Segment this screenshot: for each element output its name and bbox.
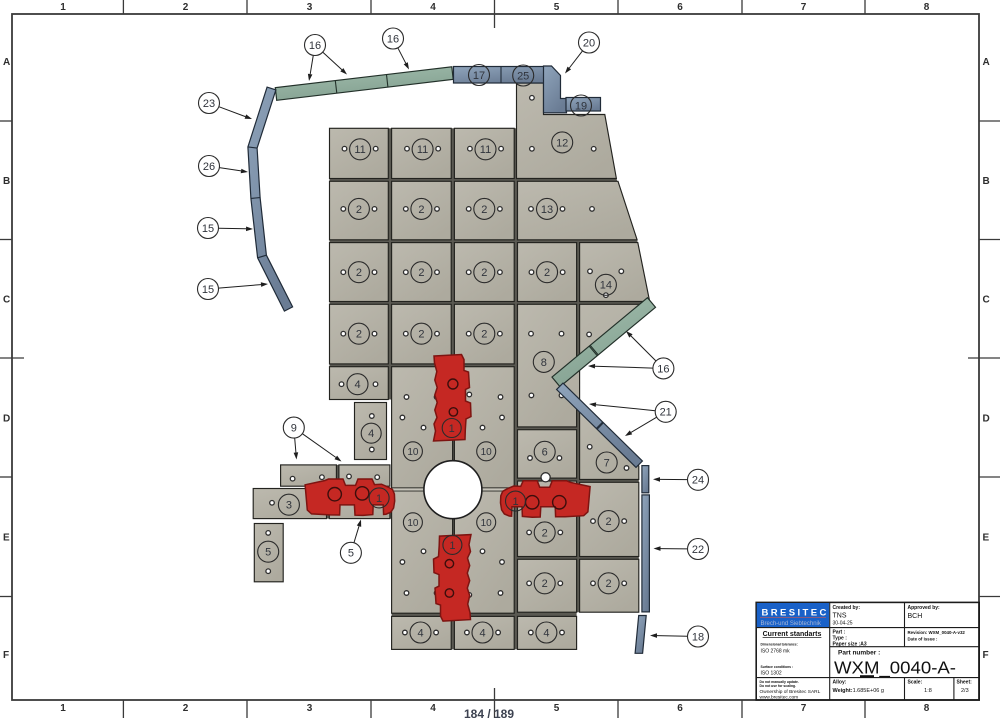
svg-text:4: 4 <box>430 703 436 714</box>
svg-text:Revision: WXM_0040-A-v32: Revision: WXM_0040-A-v32 <box>908 630 966 635</box>
svg-text:2: 2 <box>481 329 487 341</box>
svg-text:20: 20 <box>583 37 595 49</box>
svg-text:22: 22 <box>692 544 704 556</box>
svg-text:16: 16 <box>387 33 399 45</box>
svg-text:10: 10 <box>481 518 493 529</box>
svg-text:15: 15 <box>202 223 214 235</box>
svg-text:2: 2 <box>606 516 612 528</box>
svg-text:BCH: BCH <box>908 613 923 620</box>
svg-text:Alloy:: Alloy: <box>833 679 847 685</box>
svg-text:Ownership of Bresitec SARL: Ownership of Bresitec SARL <box>760 689 821 695</box>
svg-text:2: 2 <box>606 578 612 590</box>
svg-text:A: A <box>3 57 10 68</box>
svg-text:Approved by:: Approved by: <box>908 605 941 611</box>
svg-text:184 / 189: 184 / 189 <box>464 707 514 718</box>
svg-text:4: 4 <box>354 379 360 391</box>
svg-text:Scale:: Scale: <box>908 679 923 685</box>
svg-text:2: 2 <box>542 527 548 539</box>
svg-text:2: 2 <box>544 267 550 279</box>
svg-text:Weight:1.685E+06 g: Weight:1.685E+06 g <box>833 688 884 694</box>
svg-text:4: 4 <box>417 627 423 639</box>
svg-text:2: 2 <box>481 267 487 279</box>
svg-text:6: 6 <box>677 703 683 714</box>
svg-text:25: 25 <box>517 70 529 82</box>
svg-text:7: 7 <box>801 703 807 714</box>
svg-text:2: 2 <box>542 578 548 590</box>
svg-text:4: 4 <box>368 428 374 440</box>
svg-text:10: 10 <box>481 447 493 458</box>
svg-text:2: 2 <box>183 703 189 714</box>
svg-text:9: 9 <box>291 422 297 434</box>
svg-text:E: E <box>983 533 990 544</box>
svg-text:10: 10 <box>407 447 419 458</box>
svg-text:Created by:: Created by: <box>833 605 861 611</box>
svg-text:11: 11 <box>480 144 491 156</box>
svg-text:8: 8 <box>924 703 930 714</box>
svg-text:A: A <box>983 57 990 68</box>
svg-text:D: D <box>3 414 10 425</box>
svg-text:ISO 1302: ISO 1302 <box>761 671 782 677</box>
svg-text:ISO 2768 mk: ISO 2768 mk <box>761 649 791 655</box>
svg-text:21: 21 <box>660 407 672 419</box>
svg-text:Part number :: Part number : <box>838 650 880 657</box>
svg-text:4: 4 <box>543 627 549 639</box>
svg-text:5: 5 <box>265 547 271 559</box>
svg-text:1: 1 <box>60 703 66 714</box>
svg-text:Date of issue :: Date of issue : <box>908 637 939 642</box>
svg-text:Do not use for scaling.: Do not use for scaling. <box>760 684 797 688</box>
svg-text:14: 14 <box>600 280 612 292</box>
svg-text:5: 5 <box>554 2 560 13</box>
svg-text:E: E <box>3 533 10 544</box>
svg-text:24: 24 <box>692 475 704 487</box>
svg-text:16: 16 <box>657 363 669 375</box>
svg-text:2: 2 <box>356 267 362 279</box>
svg-text:Paper size :A3: Paper size :A3 <box>833 642 867 648</box>
svg-text:3: 3 <box>286 500 292 512</box>
svg-text:1: 1 <box>449 540 455 552</box>
svg-text:Current standarts: Current standarts <box>763 631 822 638</box>
svg-text:7: 7 <box>604 457 610 469</box>
svg-text:19: 19 <box>575 100 587 112</box>
svg-text:8: 8 <box>541 357 547 369</box>
svg-text:2: 2 <box>481 204 487 216</box>
svg-text:12: 12 <box>556 137 568 149</box>
svg-text:3: 3 <box>307 703 313 714</box>
svg-text:BRESITEC: BRESITEC <box>762 608 829 619</box>
svg-text:1: 1 <box>449 423 455 435</box>
svg-text:26: 26 <box>203 161 215 173</box>
svg-text:D: D <box>983 414 990 425</box>
svg-text:10: 10 <box>407 518 419 529</box>
svg-text:1:8: 1:8 <box>924 688 932 694</box>
svg-text:1: 1 <box>512 496 518 508</box>
svg-text:7: 7 <box>801 2 807 13</box>
svg-text:2/3: 2/3 <box>961 688 969 694</box>
svg-text:F: F <box>983 650 989 661</box>
svg-text:6: 6 <box>542 447 548 459</box>
svg-text:Dimensional tolerance:: Dimensional tolerance: <box>761 643 798 647</box>
svg-text:15: 15 <box>202 284 214 296</box>
svg-text:Brech-und Siebtechnik: Brech-und Siebtechnik <box>761 621 822 627</box>
svg-text:18: 18 <box>692 631 704 643</box>
svg-text:2: 2 <box>418 204 424 216</box>
svg-text:B: B <box>3 176 10 187</box>
svg-text:4: 4 <box>479 627 485 639</box>
svg-text:16: 16 <box>309 40 321 52</box>
svg-text:F: F <box>3 650 9 661</box>
svg-text:23: 23 <box>203 98 215 110</box>
svg-text:C: C <box>983 295 990 306</box>
svg-text:2: 2 <box>183 2 189 13</box>
svg-text:B: B <box>983 176 990 187</box>
svg-text:2: 2 <box>356 204 362 216</box>
svg-text:5: 5 <box>554 703 560 714</box>
svg-text:13: 13 <box>541 204 553 216</box>
svg-text:30-04-25: 30-04-25 <box>833 621 853 627</box>
svg-text:3: 3 <box>307 2 313 13</box>
svg-text:2: 2 <box>356 329 362 341</box>
svg-text:6: 6 <box>677 2 683 13</box>
svg-text:11: 11 <box>417 144 428 156</box>
svg-text:2: 2 <box>418 329 424 341</box>
svg-text:WXM_0040-A-: WXM_0040-A- <box>834 658 956 679</box>
svg-text:Surface conditions :: Surface conditions : <box>761 665 794 669</box>
svg-text:8: 8 <box>924 2 930 13</box>
svg-text:TNS: TNS <box>833 613 847 620</box>
svg-text:1: 1 <box>376 493 382 505</box>
svg-text:2: 2 <box>418 267 424 279</box>
svg-text:www.bresitec.com: www.bresitec.com <box>760 695 799 701</box>
svg-text:1: 1 <box>60 2 66 13</box>
svg-text:4: 4 <box>430 2 436 13</box>
svg-text:11: 11 <box>354 144 365 156</box>
svg-text:C: C <box>3 295 10 306</box>
svg-text:Sheet:: Sheet: <box>957 679 973 685</box>
svg-text:5: 5 <box>348 548 354 560</box>
svg-text:17: 17 <box>473 70 485 82</box>
